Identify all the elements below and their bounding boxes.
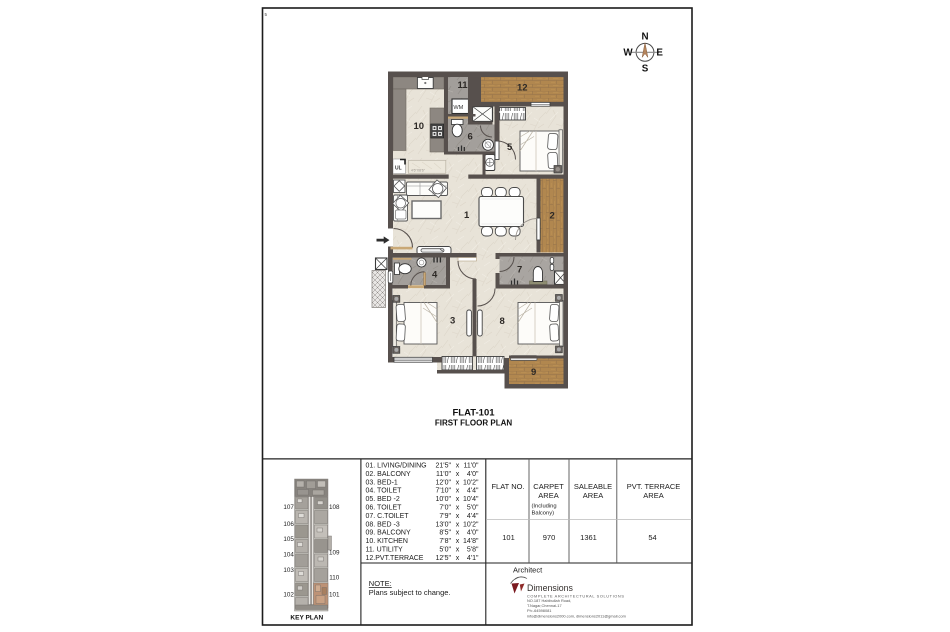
svg-text:NOTE:: NOTE:	[369, 579, 392, 588]
svg-text:CARPET: CARPET	[533, 482, 564, 491]
svg-text:3: 3	[450, 316, 455, 327]
svg-text:05. BED -2: 05. BED -2	[366, 496, 400, 503]
svg-text:11'0": 11'0"	[464, 463, 479, 470]
svg-text:01. LIVING/DINING: 01. LIVING/DINING	[366, 463, 427, 470]
svg-text:Balcony): Balcony)	[532, 511, 555, 517]
svg-text:W: W	[623, 48, 633, 59]
svg-text:8: 8	[500, 316, 505, 327]
svg-text:8'5": 8'5"	[439, 530, 451, 537]
svg-text:12.PVT.TERRACE: 12.PVT.TERRACE	[366, 555, 424, 562]
svg-text:Ph:-64598081: Ph:-64598081	[527, 608, 551, 613]
svg-text:FLAT NO.: FLAT NO.	[491, 482, 524, 491]
svg-text:06. TOILET: 06. TOILET	[366, 505, 403, 512]
svg-text:4'1": 4'1"	[467, 555, 479, 562]
svg-text:5'8": 5'8"	[467, 547, 479, 554]
svg-text:12'5": 12'5"	[435, 555, 451, 562]
svg-text:09. BALCONY: 09. BALCONY	[366, 530, 411, 537]
svg-text:14'8": 14'8"	[463, 538, 479, 545]
svg-text:info@dimensions2000.com, dimen: info@dimensions2000.com, dimensions2011@…	[527, 614, 626, 619]
svg-text:x: x	[456, 505, 460, 512]
svg-text:Architect: Architect	[513, 566, 543, 575]
svg-text:(Including: (Including	[532, 504, 557, 510]
svg-text:x: x	[456, 496, 460, 503]
svg-text:Plans subject to change.: Plans subject to change.	[369, 588, 451, 597]
svg-text:10'0": 10'0"	[435, 496, 451, 503]
svg-text:07. C.TOILET: 07. C.TOILET	[366, 513, 410, 520]
svg-text:101: 101	[502, 533, 515, 542]
svg-text:101: 101	[329, 591, 340, 598]
svg-text:11'0": 11'0"	[436, 471, 451, 478]
svg-text:x: x	[456, 555, 460, 562]
svg-text:21'5": 21'5"	[435, 463, 451, 470]
svg-text:105: 105	[283, 536, 294, 543]
svg-text:FIRST FLOOR PLAN: FIRST FLOOR PLAN	[435, 419, 513, 428]
svg-text:104: 104	[283, 552, 294, 559]
svg-text:11: 11	[458, 80, 469, 91]
svg-text:106: 106	[283, 521, 294, 528]
svg-text:4: 4	[432, 270, 438, 281]
svg-text:1: 1	[464, 210, 470, 221]
svg-text:10: 10	[414, 121, 425, 132]
svg-text:AREA: AREA	[538, 491, 558, 500]
svg-text:FLAT-101: FLAT-101	[452, 408, 495, 419]
svg-text:04. TOILET: 04. TOILET	[366, 488, 403, 495]
svg-text:5: 5	[507, 142, 513, 153]
svg-text:PVT. TERRACE: PVT. TERRACE	[627, 482, 681, 491]
svg-text:7'10": 7'10"	[435, 488, 451, 495]
svg-text:4'6"X8'6": 4'6"X8'6"	[411, 169, 426, 173]
svg-text:2: 2	[550, 211, 555, 222]
svg-text:4'4": 4'4"	[467, 488, 479, 495]
svg-text:E: E	[656, 48, 663, 59]
svg-text:S: S	[642, 64, 649, 75]
svg-text:9: 9	[531, 367, 536, 378]
svg-text:102: 102	[283, 591, 294, 598]
svg-text:6: 6	[468, 132, 473, 143]
svg-text:109: 109	[329, 550, 340, 557]
svg-text:x: x	[456, 513, 460, 520]
svg-text:4'4": 4'4"	[467, 513, 479, 520]
svg-text:10'4": 10'4"	[463, 496, 479, 503]
svg-text:5'0": 5'0"	[467, 505, 479, 512]
svg-text:N: N	[641, 31, 648, 42]
svg-text:WM: WM	[453, 105, 463, 111]
svg-text:KEY PLAN: KEY PLAN	[290, 615, 323, 622]
svg-text:x: x	[456, 538, 460, 545]
svg-text:11. UTILITY: 11. UTILITY	[366, 547, 404, 554]
svg-text:AREA: AREA	[583, 491, 603, 500]
svg-text:54: 54	[648, 533, 656, 542]
svg-text:UL: UL	[395, 166, 402, 172]
svg-text:03. BED-1: 03. BED-1	[366, 479, 398, 486]
svg-text:x: x	[456, 488, 460, 495]
svg-text:7'9": 7'9"	[439, 513, 451, 520]
svg-text:108: 108	[329, 504, 340, 511]
svg-text:AREA: AREA	[643, 491, 663, 500]
svg-text:4'0": 4'0"	[467, 471, 479, 478]
svg-text:103: 103	[283, 567, 294, 574]
svg-text:110: 110	[329, 575, 340, 582]
svg-text:x: x	[456, 521, 460, 528]
svg-text:Dimensions: Dimensions	[527, 583, 574, 593]
svg-text:x: x	[456, 530, 460, 537]
svg-text:107: 107	[283, 504, 294, 511]
svg-text:SALEABLE: SALEABLE	[574, 482, 612, 491]
svg-text:10'2": 10'2"	[463, 479, 479, 486]
svg-text:4'0": 4'0"	[467, 530, 479, 537]
svg-text:5'0": 5'0"	[439, 547, 451, 554]
svg-text:1361: 1361	[580, 533, 597, 542]
svg-text:12: 12	[517, 83, 528, 94]
svg-text:10'2": 10'2"	[463, 521, 479, 528]
svg-text:x: x	[456, 471, 460, 478]
svg-text:7'8": 7'8"	[439, 538, 451, 545]
svg-text:x: x	[456, 463, 460, 470]
svg-text:x: x	[456, 547, 460, 554]
svg-text:7'0": 7'0"	[439, 505, 451, 512]
svg-text:10. KITCHEN: 10. KITCHEN	[366, 538, 408, 545]
svg-text:08. BED -3: 08. BED -3	[366, 521, 400, 528]
svg-text:02. BALCONY: 02. BALCONY	[366, 471, 411, 478]
svg-text:970: 970	[543, 533, 556, 542]
svg-text:7: 7	[517, 265, 522, 276]
svg-text:12'0": 12'0"	[435, 479, 451, 486]
svg-text:x: x	[456, 479, 460, 486]
svg-text:13'0": 13'0"	[435, 521, 451, 528]
